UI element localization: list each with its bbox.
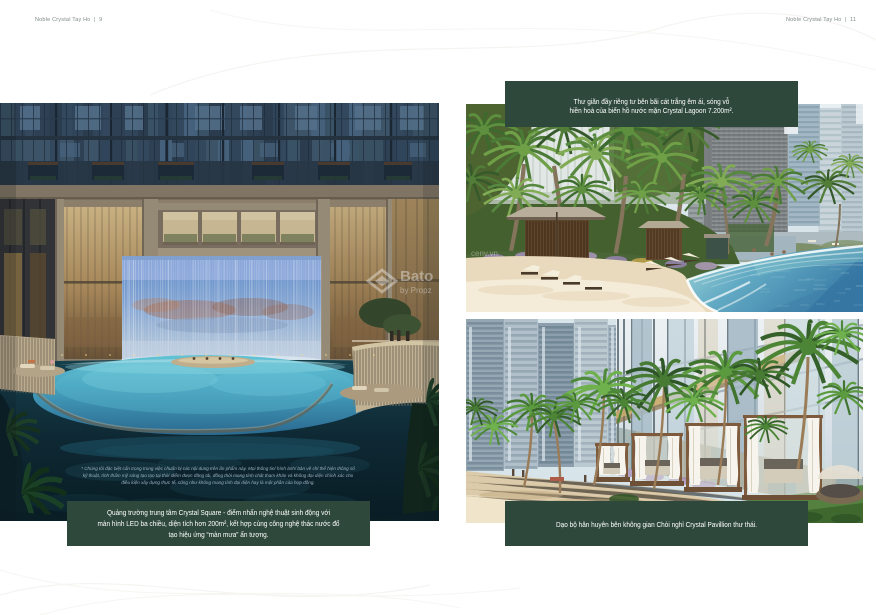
svg-text:điều kiện xây dựng thực tế, cũ: điều kiện xây dựng thực tế, cũng như khô… [121, 479, 314, 485]
svg-text:* Chúng tôi đặc biệt cẩn trọng: * Chúng tôi đặc biệt cẩn trọng trong việ… [81, 465, 355, 471]
svg-text:kỹ thuật, tính thẩm mỹ sáng tạ: kỹ thuật, tính thẩm mỹ sáng tạo tạo tại … [83, 472, 354, 478]
svg-text:cenv.vn: cenv.vn [471, 249, 498, 258]
svg-text:Bato: Bato [400, 268, 433, 285]
svg-text:by Propz: by Propz [400, 286, 432, 295]
